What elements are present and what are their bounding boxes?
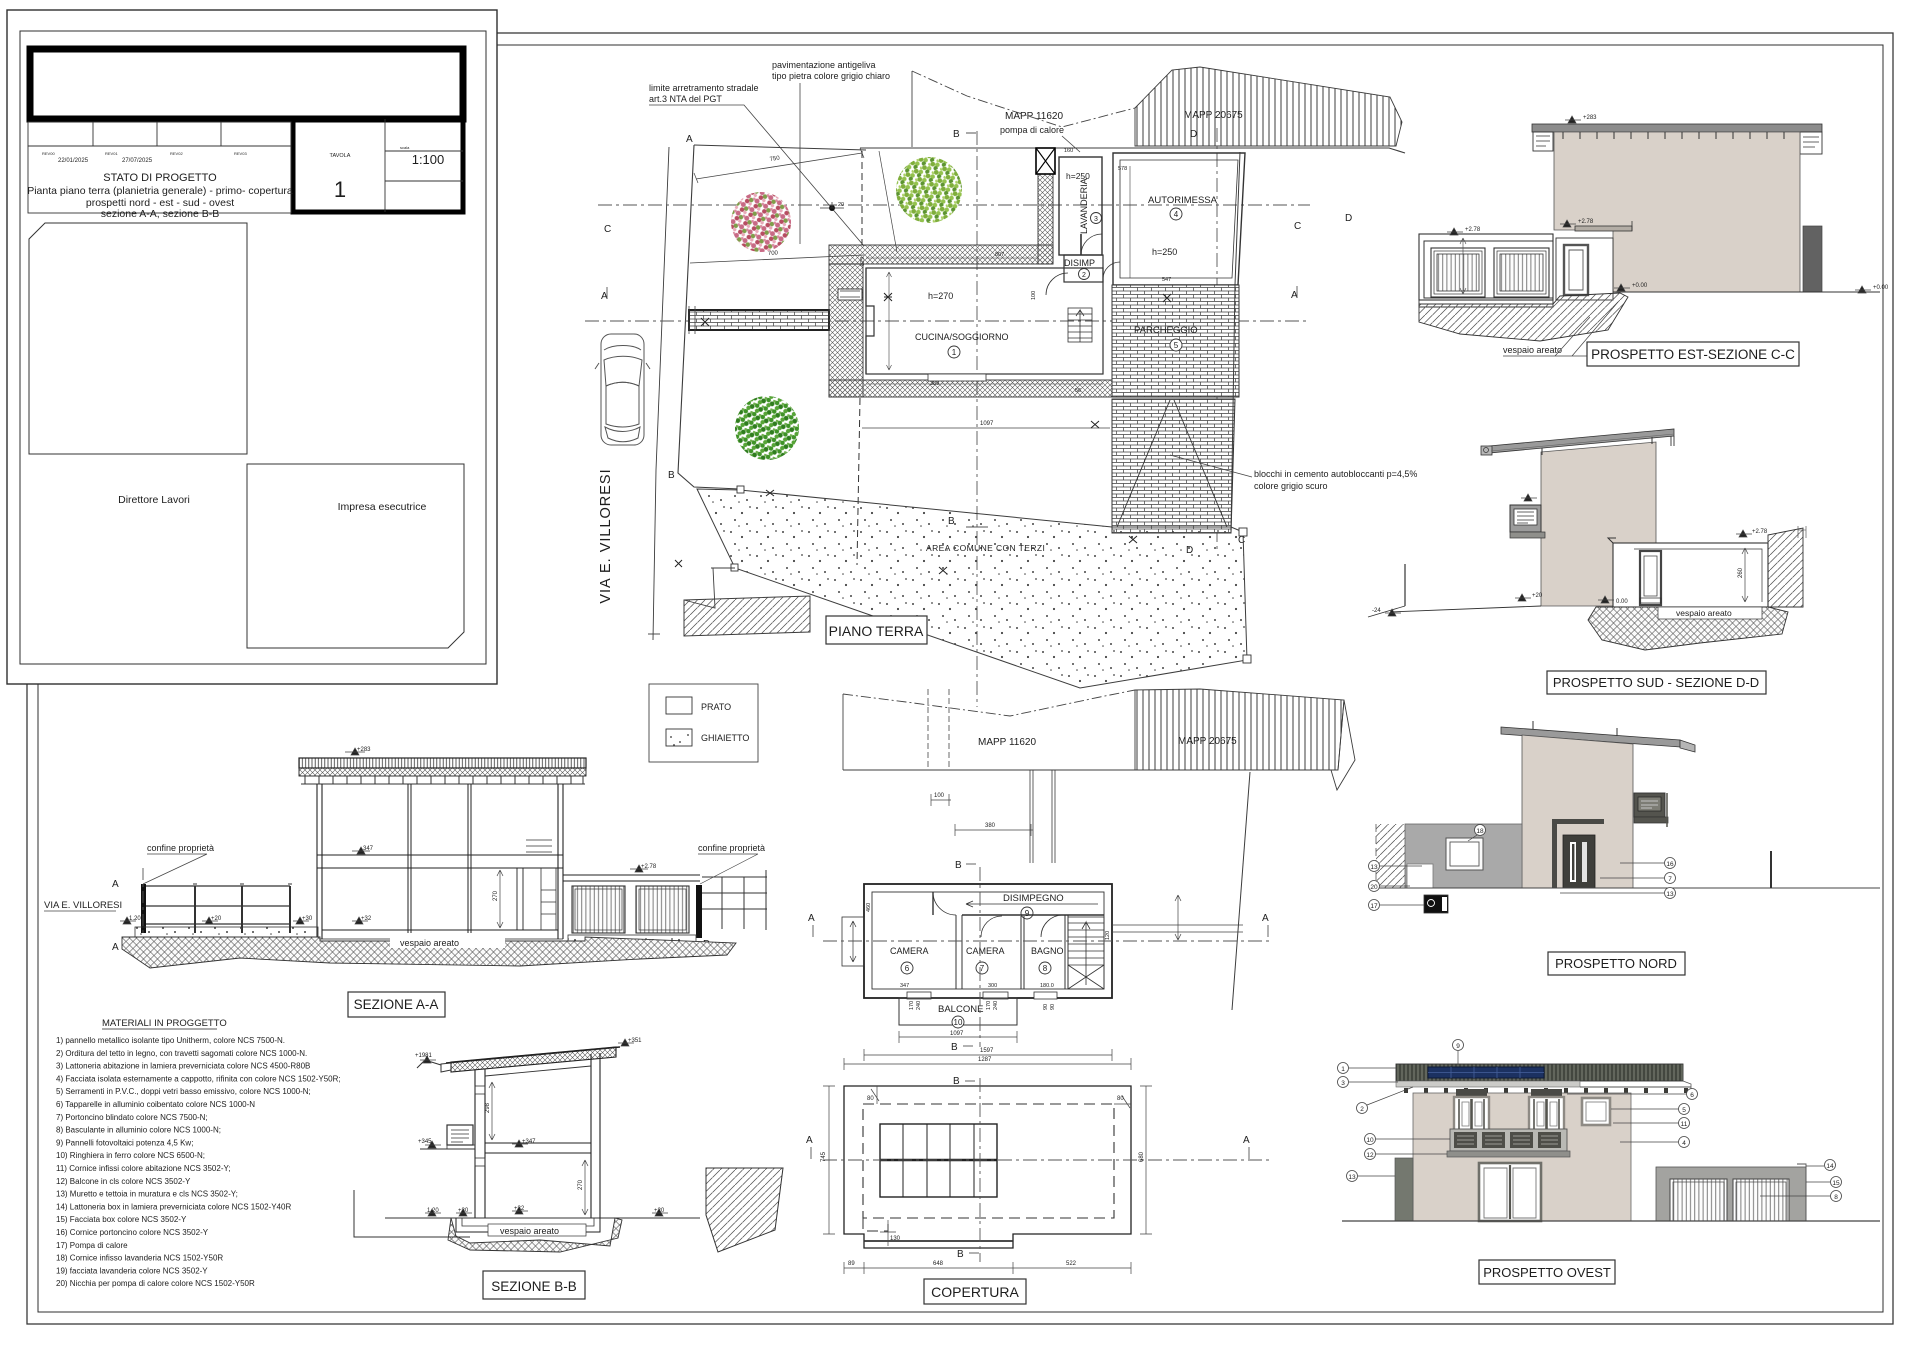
svg-text:300: 300 bbox=[988, 983, 997, 989]
svg-text:B: B bbox=[668, 470, 675, 481]
svg-text:1097: 1097 bbox=[980, 421, 994, 427]
svg-text:+20: +20 bbox=[1532, 593, 1543, 599]
svg-text:GHIAIETTO: GHIAIETTO bbox=[701, 733, 749, 743]
svg-text:160: 160 bbox=[1064, 148, 1073, 154]
svg-text:9: 9 bbox=[1456, 1043, 1460, 1050]
svg-text:648: 648 bbox=[933, 1261, 944, 1267]
svg-text:460: 460 bbox=[866, 903, 872, 912]
svg-text:A: A bbox=[806, 1135, 813, 1146]
svg-text:15) Facciata box colore NCS 35: 15) Facciata box colore NCS 3502-Y bbox=[56, 1215, 187, 1224]
svg-text:17) Pompa di calore: 17) Pompa di calore bbox=[56, 1241, 128, 1250]
svg-text:10) Ringhiera in ferro colore: 10) Ringhiera in ferro colore NCS 6500-N… bbox=[56, 1151, 205, 1160]
svg-text:limite arretramento stradale: limite arretramento stradale bbox=[649, 83, 759, 93]
svg-text:Pianta piano terra (planietria: Pianta piano terra (planietria generale)… bbox=[27, 185, 293, 197]
svg-text:confine proprietà: confine proprietà bbox=[698, 843, 765, 853]
svg-text:11: 11 bbox=[1681, 1121, 1688, 1128]
svg-text:18) Cornice infisso lavanderia: 18) Cornice infisso lavanderia NCS 1502-… bbox=[56, 1254, 223, 1263]
svg-text:PRATO: PRATO bbox=[701, 702, 731, 712]
svg-text:3) Lattoneria abitazione in la: 3) Lattoneria abitazione in lamiera prev… bbox=[56, 1062, 310, 1071]
svg-text:+0.00: +0.00 bbox=[1873, 285, 1889, 291]
svg-text:CAMERA: CAMERA bbox=[966, 946, 1005, 956]
svg-text:art.3 NTA del PGT: art.3 NTA del PGT bbox=[649, 94, 722, 104]
svg-text:BAGNO: BAGNO bbox=[1031, 946, 1064, 956]
svg-text:VIA E. VILLORESI: VIA E. VILLORESI bbox=[598, 468, 614, 603]
svg-text:2) Orditura del tetto in legno: 2) Orditura del tetto in legno, con trav… bbox=[56, 1049, 307, 1058]
svg-text:1597: 1597 bbox=[980, 1048, 994, 1054]
svg-text:PROSPETTO NORD: PROSPETTO NORD bbox=[1555, 956, 1677, 971]
svg-text:+2.78: +2.78 bbox=[1578, 219, 1594, 225]
svg-text:170: 170 bbox=[909, 1001, 915, 1010]
svg-text:8: 8 bbox=[1043, 964, 1048, 973]
svg-text:260: 260 bbox=[1738, 567, 1744, 578]
svg-text:colore grigio scuro: colore grigio scuro bbox=[1254, 481, 1328, 491]
svg-text:pavimentazione antigeliva: pavimentazione antigeliva bbox=[772, 60, 876, 70]
svg-text:h=250: h=250 bbox=[1152, 247, 1177, 257]
svg-text:22/01/2025: 22/01/2025 bbox=[58, 158, 89, 164]
svg-text:4: 4 bbox=[1174, 210, 1179, 219]
svg-text:+351: +351 bbox=[628, 1038, 642, 1044]
svg-text:+0.00: +0.00 bbox=[1632, 283, 1648, 289]
svg-text:680: 680 bbox=[1139, 1151, 1145, 1162]
svg-text:+1981: +1981 bbox=[415, 1053, 433, 1059]
svg-text:700: 700 bbox=[768, 250, 779, 257]
svg-text:0.00: 0.00 bbox=[1616, 599, 1628, 605]
svg-text:19) facciata lavanderia colore: 19) facciata lavanderia colore NCS 3502-… bbox=[56, 1266, 208, 1275]
svg-text:10: 10 bbox=[1366, 1137, 1374, 1144]
svg-text:SEZIONE B-B: SEZIONE B-B bbox=[491, 1279, 577, 1294]
svg-text:298: 298 bbox=[485, 1102, 491, 1113]
svg-text:+347: +347 bbox=[522, 1139, 536, 1145]
svg-text:180.0: 180.0 bbox=[1040, 983, 1054, 989]
svg-text:4: 4 bbox=[1682, 1140, 1686, 1147]
svg-text:578: 578 bbox=[1118, 166, 1127, 172]
svg-text:A: A bbox=[112, 879, 119, 890]
svg-text:380: 380 bbox=[985, 823, 996, 829]
svg-text:1097: 1097 bbox=[950, 1031, 964, 1037]
svg-text:-24: -24 bbox=[1372, 608, 1381, 614]
svg-text:807: 807 bbox=[995, 252, 1004, 258]
svg-text:2: 2 bbox=[1360, 1106, 1364, 1113]
svg-text:17: 17 bbox=[1370, 903, 1378, 910]
svg-text:11) Cornice infissi colore abi: 11) Cornice infissi colore abitazione NC… bbox=[56, 1164, 231, 1173]
svg-text:6: 6 bbox=[905, 964, 910, 973]
svg-text:745: 745 bbox=[821, 1151, 827, 1162]
svg-text:8) Basculante in alluminio col: 8) Basculante in alluminio colore NCS 10… bbox=[56, 1126, 221, 1135]
svg-text:D: D bbox=[1345, 213, 1352, 224]
svg-text:AREA COMUNE CON TERZI: AREA COMUNE CON TERZI bbox=[926, 543, 1045, 553]
svg-text:PIANO TERRA: PIANO TERRA bbox=[829, 623, 924, 639]
svg-text:CUCINA/SOGGIORNO: CUCINA/SOGGIORNO bbox=[915, 332, 1009, 342]
svg-text:pompa di calore: pompa di calore bbox=[1000, 125, 1064, 135]
svg-text:AUTORIMESSA: AUTORIMESSA bbox=[1148, 195, 1218, 206]
svg-text:7: 7 bbox=[1668, 876, 1672, 883]
svg-text:+32: +32 bbox=[361, 916, 372, 922]
svg-text:B: B bbox=[955, 860, 962, 871]
svg-text:COPERTURA: COPERTURA bbox=[931, 1284, 1019, 1300]
svg-text:Direttore Lavori: Direttore Lavori bbox=[118, 494, 190, 506]
svg-text:blocchi in cemento autobloccan: blocchi in cemento autobloccanti p=4,5% bbox=[1254, 469, 1417, 479]
svg-text:Impresa esecutrice: Impresa esecutrice bbox=[338, 501, 427, 513]
svg-text:14: 14 bbox=[1826, 1163, 1834, 1170]
svg-text:16) Cornice portoncino colore: 16) Cornice portoncino colore NCS 3502-Y bbox=[56, 1228, 209, 1237]
svg-text:6) Tapparelle in alluminio coi: 6) Tapparelle in alluminio coibentato co… bbox=[56, 1100, 255, 1109]
svg-text:1:100: 1:100 bbox=[412, 152, 445, 167]
svg-text:130: 130 bbox=[890, 1236, 901, 1242]
svg-text:h=270: h=270 bbox=[928, 291, 953, 301]
svg-text:D: D bbox=[1190, 129, 1197, 140]
svg-text:+32: +32 bbox=[514, 1206, 525, 1212]
svg-text:+2.78: +2.78 bbox=[1752, 529, 1768, 535]
svg-text:13) Muretto e tettoia in murat: 13) Muretto e tettoia in muratura e cls … bbox=[56, 1190, 238, 1199]
svg-text:PROSPETTO OVEST: PROSPETTO OVEST bbox=[1483, 1265, 1611, 1280]
svg-text:5: 5 bbox=[1682, 1107, 1686, 1114]
svg-text:1) pannello metallico isolante: 1) pannello metallico isolante tipo Unit… bbox=[56, 1036, 285, 1045]
svg-text:MATERIALI IN PROGGETTO: MATERIALI IN PROGGETTO bbox=[102, 1018, 227, 1029]
svg-text:scala: scala bbox=[400, 145, 410, 150]
svg-text:1: 1 bbox=[952, 348, 957, 357]
svg-text:89: 89 bbox=[848, 1261, 855, 1267]
svg-text:DISIMP: DISIMP bbox=[1064, 258, 1095, 268]
svg-text:5) Serramenti in P.V.C., doppi: 5) Serramenti in P.V.C., doppi vetri bas… bbox=[56, 1087, 311, 1096]
svg-text:B: B bbox=[951, 1042, 958, 1053]
svg-text:8: 8 bbox=[1834, 1194, 1838, 1201]
svg-text:2: 2 bbox=[1082, 272, 1086, 279]
svg-text:vespaio areato: vespaio areato bbox=[400, 938, 459, 948]
svg-text:347: 347 bbox=[363, 846, 374, 852]
svg-text:170: 170 bbox=[986, 1001, 992, 1010]
svg-text:+283: +283 bbox=[1583, 115, 1597, 121]
svg-text:CAMERA: CAMERA bbox=[890, 946, 929, 956]
svg-text:PARCHEGGIO: PARCHEGGIO bbox=[1134, 325, 1198, 336]
svg-text:+30: +30 bbox=[458, 1208, 469, 1214]
svg-text:5: 5 bbox=[1174, 341, 1179, 350]
svg-text:14) Lattoneria box in lamiera: 14) Lattoneria box in lamiera prevernici… bbox=[56, 1202, 291, 1211]
svg-text:REV02: REV02 bbox=[170, 151, 183, 156]
svg-text:240: 240 bbox=[993, 1001, 999, 1010]
svg-text:12: 12 bbox=[1366, 1152, 1374, 1159]
svg-text:C: C bbox=[604, 224, 611, 235]
svg-text:vespaio areato: vespaio areato bbox=[500, 1226, 559, 1236]
svg-text:MAPP 11620: MAPP 11620 bbox=[978, 737, 1036, 748]
svg-text:MAPP 11620: MAPP 11620 bbox=[1005, 111, 1063, 122]
svg-text:A: A bbox=[808, 913, 815, 924]
svg-text:+345: +345 bbox=[418, 1139, 432, 1145]
svg-text:TAVOLA: TAVOLA bbox=[330, 153, 351, 159]
svg-text:90: 90 bbox=[1043, 1004, 1049, 1010]
svg-text:389: 389 bbox=[930, 381, 939, 387]
svg-text:1: 1 bbox=[334, 177, 346, 202]
svg-text:270: 270 bbox=[578, 1179, 584, 1190]
svg-text:10: 10 bbox=[954, 1018, 963, 1027]
svg-text:+2.78: +2.78 bbox=[641, 864, 657, 870]
svg-text:+20: +20 bbox=[211, 916, 222, 922]
svg-text:tipo pietra colore grigio chia: tipo pietra colore grigio chiaro bbox=[772, 71, 890, 81]
svg-text:LAVANDERIA: LAVANDERIA bbox=[1079, 178, 1089, 234]
svg-text:A: A bbox=[112, 942, 119, 953]
svg-text:REV01: REV01 bbox=[105, 151, 118, 156]
svg-text:3: 3 bbox=[1341, 1080, 1345, 1087]
svg-text:20: 20 bbox=[1370, 884, 1378, 891]
svg-text:A: A bbox=[1262, 913, 1269, 924]
svg-text:B: B bbox=[957, 1249, 964, 1260]
svg-text:20) Nicchia per pompa di calor: 20) Nicchia per pompa di calore colore N… bbox=[56, 1279, 255, 1288]
svg-text:+30: +30 bbox=[302, 916, 313, 922]
svg-text:+283: +283 bbox=[357, 747, 371, 753]
svg-text:100: 100 bbox=[1031, 291, 1037, 300]
svg-text:80: 80 bbox=[867, 1096, 874, 1102]
svg-text:7) Portoncino blindato colore: 7) Portoncino blindato colore NCS 7500-N… bbox=[56, 1113, 208, 1122]
svg-text:PROSPETTO EST-SEZIONE C-C: PROSPETTO EST-SEZIONE C-C bbox=[1591, 347, 1795, 362]
svg-text:REV00: REV00 bbox=[42, 151, 55, 156]
svg-text:7: 7 bbox=[980, 964, 985, 973]
svg-text:13: 13 bbox=[1666, 891, 1674, 898]
svg-text:BALCONE: BALCONE bbox=[938, 1004, 983, 1015]
svg-text:9: 9 bbox=[1025, 909, 1030, 918]
svg-text:+2.78: +2.78 bbox=[1465, 227, 1481, 233]
svg-text:27/07/2025: 27/07/2025 bbox=[122, 158, 153, 164]
svg-text:1.20: 1.20 bbox=[129, 916, 141, 922]
svg-text:1.20: 1.20 bbox=[427, 1208, 439, 1214]
svg-text:4) Facciata isolata esternamen: 4) Facciata isolata esternamente a cappo… bbox=[56, 1074, 341, 1083]
svg-text:h=250: h=250 bbox=[1066, 171, 1090, 181]
svg-text:B: B bbox=[953, 129, 960, 140]
svg-text:A: A bbox=[1243, 1135, 1250, 1146]
svg-text:13: 13 bbox=[1370, 864, 1378, 871]
svg-text:240: 240 bbox=[916, 1001, 922, 1010]
svg-text:100: 100 bbox=[934, 793, 945, 799]
svg-text:9) Pannelli fotovoltaici poten: 9) Pannelli fotovoltaici potenza 4,5 Kw; bbox=[56, 1138, 193, 1147]
svg-text:547: 547 bbox=[1162, 277, 1171, 283]
svg-text:270: 270 bbox=[493, 890, 499, 901]
svg-text:C: C bbox=[1294, 221, 1301, 232]
svg-text:B: B bbox=[953, 1076, 960, 1087]
svg-text:829: 829 bbox=[860, 257, 866, 266]
svg-text:13: 13 bbox=[1348, 1174, 1356, 1181]
svg-text:522: 522 bbox=[1066, 1261, 1077, 1267]
svg-text:56: 56 bbox=[1075, 388, 1081, 394]
svg-text:PROSPETTO SUD - SEZIONE D-D: PROSPETTO SUD - SEZIONE D-D bbox=[1553, 675, 1759, 690]
svg-text:90: 90 bbox=[1050, 1004, 1056, 1010]
svg-text:DISIMPEGNO: DISIMPEGNO bbox=[1003, 893, 1064, 904]
svg-text:STATO DI PROGETTO: STATO DI PROGETTO bbox=[103, 172, 217, 184]
svg-text:347: 347 bbox=[900, 983, 909, 989]
svg-text:1: 1 bbox=[1341, 1066, 1345, 1073]
svg-text:1287: 1287 bbox=[978, 1057, 992, 1063]
svg-text:SEZIONE A-A: SEZIONE A-A bbox=[354, 997, 439, 1012]
svg-text:6: 6 bbox=[1690, 1092, 1694, 1099]
svg-text:sezione A-A, sezione B-B: sezione A-A, sezione B-B bbox=[101, 208, 219, 220]
svg-text:VIA E. VILLORESI: VIA E. VILLORESI bbox=[44, 900, 122, 911]
svg-text:120: 120 bbox=[1105, 931, 1111, 940]
svg-text:REV03: REV03 bbox=[234, 151, 247, 156]
svg-text:80: 80 bbox=[1117, 1096, 1124, 1102]
svg-text:confine proprietà: confine proprietà bbox=[147, 843, 214, 853]
svg-text:vespaio areato: vespaio areato bbox=[1676, 608, 1732, 618]
svg-text:A: A bbox=[686, 134, 693, 145]
svg-text:12) Balcone in cls colore NCS: 12) Balcone in cls colore NCS 3502-Y bbox=[56, 1177, 191, 1186]
svg-text:18: 18 bbox=[1476, 828, 1484, 835]
svg-text:3: 3 bbox=[1094, 216, 1098, 223]
svg-text:vespaio areato: vespaio areato bbox=[1503, 345, 1562, 355]
svg-text:+20: +20 bbox=[654, 1208, 665, 1214]
svg-text:MAPP 20675: MAPP 20675 bbox=[1178, 736, 1237, 747]
svg-text:16: 16 bbox=[1666, 861, 1674, 868]
svg-text:15: 15 bbox=[1832, 1180, 1840, 1187]
